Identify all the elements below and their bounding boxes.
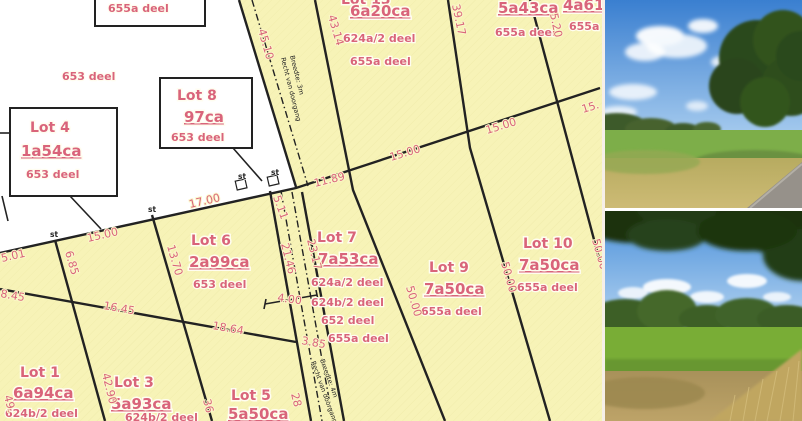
lot7-title: Lot 7 (317, 230, 357, 246)
lot7-deed-3: 652 deel (321, 314, 374, 327)
stone-marker-st-3: st (238, 172, 246, 181)
photo-bottom-meadow (605, 211, 802, 421)
listing-collage: 655a deel 653 deel Lot 13 6a20ca 624a/2 … (0, 0, 802, 421)
photo-column (602, 0, 802, 421)
stone-marker-st-2: st (148, 205, 156, 214)
lot7-deed-4: 655a deel (328, 332, 389, 345)
lot6-title: Lot 6 (191, 233, 231, 249)
lot7-deed-1: 624a/2 deel (311, 276, 383, 289)
cadastral-map-drawing: 655a deel 653 deel Lot 13 6a20ca 624a/2 … (0, 0, 602, 421)
lot5-area: 5a50ca (228, 405, 288, 421)
cadastral-map: 655a deel 653 deel Lot 13 6a20ca 624a/2 … (0, 0, 602, 421)
lot4-area: 1a54ca (21, 142, 81, 160)
lot9-deed: 655a deel (421, 305, 482, 318)
lot6-deed: 653 deel (193, 278, 246, 291)
stone-marker-st-1: st (50, 230, 58, 239)
photo-top-field-with-tree (605, 0, 802, 208)
parcel-4a61-area: 4a61ca (563, 0, 602, 14)
lot1-title: Lot 1 (20, 365, 60, 381)
lot9-title: Lot 9 (429, 260, 469, 276)
lot13-area: 6a20ca (350, 2, 410, 20)
lot3-deed: 624b/2 deel (125, 411, 198, 421)
stone-marker-st-4: st (271, 168, 279, 177)
lot7-area: 7a53ca (318, 250, 378, 268)
lot10-area: 7a50ca (519, 256, 579, 274)
lot3-title: Lot 3 (114, 375, 154, 391)
lot5-title: Lot 5 (231, 388, 271, 404)
lot9-area: 7a50ca (424, 280, 484, 298)
lot8-title: Lot 8 (177, 88, 217, 104)
lot1-area: 6a94ca (13, 384, 73, 402)
parcel-5a43-deed: 655a deel (495, 26, 556, 39)
lot7-deed-2: 624b/2 deel (311, 296, 384, 309)
lot4-title: Lot 4 (30, 120, 70, 136)
label-653-deel-free: 653 deel (62, 70, 115, 83)
parcel-4a61-deed: 655a deel (569, 20, 602, 33)
lot13-deed-1: 624a/2 deel (343, 32, 415, 45)
lot10-title: Lot 10 (523, 236, 573, 252)
lot8-deed: 653 deel (171, 131, 224, 144)
lot10-deed: 655a deel (517, 281, 578, 294)
lot6-area: 2a99ca (189, 253, 249, 271)
lot8-area: 97ca (184, 108, 224, 126)
label-655a-deel: 655a deel (108, 2, 169, 15)
lot4-deed: 653 deel (26, 168, 79, 181)
lot13-deed-2: 655a deel (350, 55, 411, 68)
